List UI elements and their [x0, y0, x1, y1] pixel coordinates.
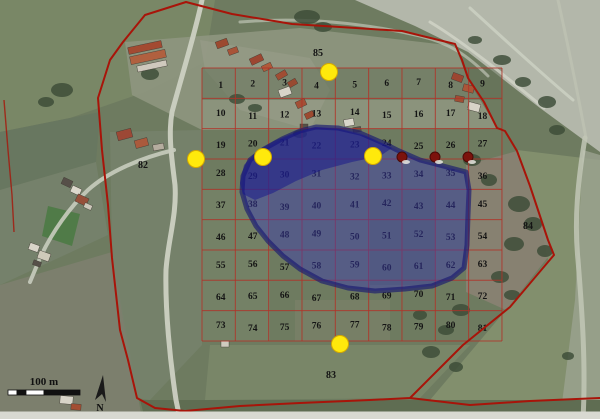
tree — [491, 271, 509, 283]
grid-cell-number: 2 — [250, 80, 255, 90]
bottom-margin — [0, 412, 600, 419]
grid-cell-number: 1 — [218, 81, 223, 91]
grid-cell-number: 64 — [216, 293, 226, 303]
tree — [452, 304, 470, 316]
sample-point-marker — [332, 336, 349, 353]
grid-cell-number: 54 — [478, 232, 488, 242]
grid-cell-number: 18 — [478, 112, 488, 122]
grid-cell-number: 36 — [478, 172, 488, 182]
grid-cell-number: 20 — [248, 140, 258, 150]
building — [221, 341, 229, 347]
scale-bar-segment — [17, 390, 26, 395]
tree — [562, 352, 574, 360]
sample-point-marker — [188, 151, 205, 168]
tree — [449, 362, 463, 372]
tree — [229, 94, 245, 104]
grid-cell-number: 17 — [446, 109, 456, 119]
scale-bar-segment — [44, 390, 80, 395]
grid-cell-number: 7 — [416, 78, 421, 88]
point-label: 85 — [313, 48, 323, 59]
building — [71, 404, 81, 411]
grid-cell-number: 79 — [414, 322, 424, 332]
tree — [549, 125, 565, 135]
sample-point-marker — [321, 64, 338, 81]
grid-cell-number: 5 — [352, 80, 357, 90]
grid-cell-number: 12 — [280, 111, 290, 121]
scale-bar-segment — [26, 390, 44, 395]
grid-cell-number: 77 — [350, 321, 360, 331]
tree — [538, 96, 556, 108]
grid-cell-number: 75 — [280, 323, 290, 333]
tree — [51, 83, 73, 97]
tree — [38, 97, 54, 107]
grid-cell-number: 46 — [216, 233, 226, 243]
tree — [493, 55, 511, 65]
grid-cell-number: 3 — [282, 78, 287, 88]
sample-point-marker — [365, 148, 382, 165]
tree — [294, 10, 320, 24]
grid-cell-number: 76 — [312, 322, 322, 332]
grid-cell-number: 68 — [350, 293, 360, 303]
well-marker-spot — [402, 160, 410, 164]
tree — [468, 36, 482, 44]
grid-cell-number: 65 — [248, 292, 258, 302]
grid-cell-number: 10 — [216, 109, 226, 119]
grid-cell-number: 67 — [312, 294, 322, 304]
building — [343, 118, 354, 127]
grid-cell-number: 56 — [248, 260, 258, 270]
tree — [422, 346, 440, 358]
grid-cell-number: 72 — [478, 292, 488, 302]
point-label: 84 — [523, 221, 533, 232]
grid-cell-number: 25 — [414, 142, 424, 152]
grid-cell-number: 71 — [446, 293, 456, 303]
grid-cell-number: 66 — [280, 291, 290, 301]
map-figure: 1234567891011121314151617181920212223242… — [0, 0, 600, 419]
grid-cell-number: 37 — [216, 201, 226, 211]
tree — [413, 310, 427, 320]
grid-cell-number: 13 — [312, 109, 322, 119]
grid-cell-number: 8 — [448, 81, 453, 91]
well-marker-spot — [468, 160, 476, 164]
tree — [508, 196, 530, 212]
sample-point-marker — [255, 149, 272, 166]
grid-cell-number: 14 — [350, 108, 360, 118]
grid-cell-number: 57 — [280, 263, 290, 273]
grid-cell-number: 9 — [480, 80, 485, 90]
tree — [504, 237, 524, 251]
grid-cell-number: 45 — [478, 200, 488, 210]
grid-cell-number: 47 — [248, 232, 258, 242]
grid-cell-number: 28 — [216, 169, 226, 179]
map-canvas: 1234567891011121314151617181920212223242… — [0, 0, 600, 419]
grid-cell-number: 78 — [382, 324, 392, 334]
grid-cell-number: 70 — [414, 290, 424, 300]
grid-cell-number: 19 — [216, 141, 226, 151]
building — [60, 395, 74, 404]
grid-cell-number: 80 — [446, 321, 456, 331]
grid-bottom-tan — [295, 300, 390, 341]
grid-cell-number: 63 — [478, 260, 488, 270]
grid-cell-number: 15 — [382, 111, 392, 121]
scale-bar-segment — [8, 390, 17, 395]
grid-cell-number: 55 — [216, 261, 226, 271]
grid-cell-number: 73 — [216, 321, 226, 331]
grid-cell-number: 6 — [384, 79, 389, 89]
grid-cell-number: 27 — [478, 140, 488, 150]
well-marker-spot — [435, 160, 443, 164]
building — [455, 95, 465, 102]
point-label: 83 — [326, 370, 336, 381]
point-label: 82 — [138, 160, 148, 171]
grid-cell-number: 74 — [248, 324, 258, 334]
tree — [515, 77, 531, 87]
grid-cell-number: 26 — [446, 141, 456, 151]
grid-cell-number: 4 — [314, 81, 319, 91]
grid-cell-number: 11 — [248, 112, 257, 122]
scale-label: 100 m — [30, 376, 58, 388]
grid-cell-number: 16 — [414, 110, 424, 120]
